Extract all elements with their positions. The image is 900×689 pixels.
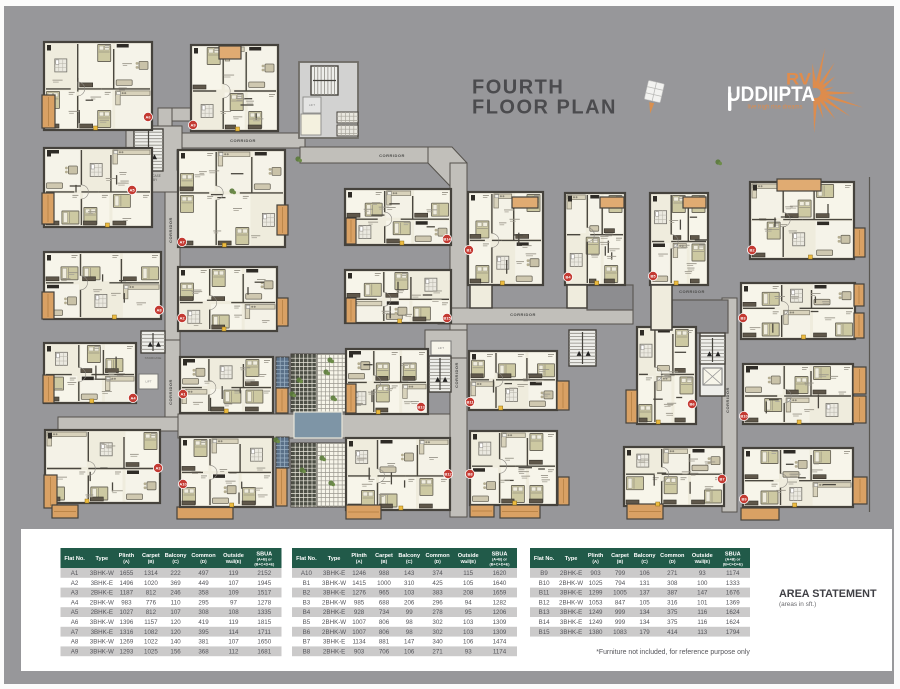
svg-text:140: 140 — [170, 639, 181, 646]
svg-text:B3: B3 — [303, 599, 311, 606]
svg-text:B13: B13 — [539, 609, 551, 616]
svg-text:(C): (C) — [641, 559, 648, 564]
svg-text:806: 806 — [379, 619, 390, 626]
svg-text:246: 246 — [170, 590, 181, 597]
svg-text:101: 101 — [697, 599, 708, 606]
svg-text:A10: A10 — [301, 570, 313, 577]
svg-text:A9: A9 — [190, 123, 196, 128]
svg-text:(areas in sft.): (areas in sft.) — [779, 601, 816, 608]
svg-text:CORRIDOR: CORRIDOR — [168, 217, 173, 243]
svg-text:B4: B4 — [565, 275, 571, 280]
svg-text:3BHK-E: 3BHK-E — [560, 629, 582, 636]
svg-text:3BHK-W: 3BHK-W — [90, 619, 114, 626]
svg-text:903: 903 — [590, 570, 601, 577]
svg-text:CORRIDOR: CORRIDOR — [230, 138, 256, 143]
svg-text:734: 734 — [379, 609, 390, 616]
svg-text:1025: 1025 — [589, 580, 603, 587]
svg-text:1022: 1022 — [144, 639, 158, 646]
svg-text:B15: B15 — [443, 316, 451, 321]
svg-text:903: 903 — [354, 648, 365, 655]
svg-text:3BHK-W: 3BHK-W — [90, 639, 114, 646]
svg-text:999: 999 — [615, 609, 626, 616]
svg-text:Flat No.: Flat No. — [64, 556, 85, 562]
svg-text:999: 999 — [615, 619, 626, 626]
svg-text:1174: 1174 — [726, 570, 740, 577]
svg-text:1335: 1335 — [257, 609, 271, 616]
svg-text:STAIRCASE: STAIRCASE — [145, 356, 162, 360]
svg-text:3BHK-E: 3BHK-E — [323, 590, 345, 597]
svg-text:271: 271 — [667, 570, 678, 577]
svg-text:B14: B14 — [539, 619, 551, 626]
svg-text:381: 381 — [198, 639, 209, 646]
svg-text:*Furniture not included, for r: *Furniture not included, for reference p… — [596, 649, 750, 656]
svg-text:B1: B1 — [466, 248, 472, 253]
svg-text:98: 98 — [406, 629, 413, 636]
svg-text:B5: B5 — [303, 619, 311, 626]
svg-text:112: 112 — [229, 648, 239, 655]
svg-text:1299: 1299 — [589, 590, 603, 597]
svg-text:1650: 1650 — [257, 639, 271, 646]
svg-text:1020: 1020 — [144, 580, 158, 587]
svg-text:B7: B7 — [719, 477, 725, 482]
svg-text:B10: B10 — [740, 414, 748, 419]
svg-text:3BHK-W: 3BHK-W — [322, 580, 346, 587]
svg-text:103: 103 — [463, 629, 474, 636]
svg-text:107: 107 — [228, 639, 239, 646]
svg-text:A5: A5 — [129, 188, 135, 193]
svg-text:375: 375 — [667, 609, 678, 616]
svg-text:1676: 1676 — [726, 590, 740, 597]
svg-text:1624: 1624 — [726, 619, 740, 626]
svg-text:B11: B11 — [539, 590, 550, 597]
svg-text:A4: A4 — [71, 599, 79, 606]
svg-text:156: 156 — [170, 648, 181, 655]
svg-text:1293: 1293 — [120, 648, 134, 655]
svg-text:497: 497 — [198, 570, 209, 577]
svg-text:A3: A3 — [155, 466, 161, 471]
svg-text:(B+C+D+E): (B+C+D+E) — [723, 563, 744, 567]
svg-text:(A+B) or: (A+B) or — [492, 558, 508, 562]
svg-text:2BHK-W: 2BHK-W — [322, 629, 346, 636]
svg-text:1517: 1517 — [257, 590, 271, 597]
svg-text:95: 95 — [465, 609, 472, 616]
svg-text:(B+C+D+E): (B+C+D+E) — [490, 563, 511, 567]
svg-text:(D): (D) — [200, 559, 207, 564]
svg-text:1309: 1309 — [493, 619, 507, 626]
svg-text:Flat No.: Flat No. — [534, 556, 555, 562]
svg-text:1053: 1053 — [589, 599, 603, 606]
svg-text:1794: 1794 — [726, 629, 740, 636]
svg-text:A7: A7 — [71, 629, 79, 636]
svg-text:271: 271 — [432, 648, 443, 655]
svg-text:B5: B5 — [650, 274, 656, 279]
svg-text:137: 137 — [639, 590, 650, 597]
svg-text:1278: 1278 — [257, 599, 271, 606]
svg-text:113: 113 — [697, 629, 707, 636]
svg-text:(A): (A) — [592, 559, 599, 564]
svg-text:B4: B4 — [303, 609, 311, 616]
svg-text:A9: A9 — [71, 648, 79, 655]
svg-text:B8: B8 — [467, 472, 473, 477]
svg-text:131: 131 — [639, 580, 650, 587]
svg-text:1187: 1187 — [120, 590, 134, 597]
svg-text:110: 110 — [171, 599, 181, 606]
svg-text:B6: B6 — [689, 402, 695, 407]
svg-text:308: 308 — [198, 609, 209, 616]
svg-text:134: 134 — [639, 619, 650, 626]
svg-text:295: 295 — [198, 599, 209, 606]
svg-text:106: 106 — [639, 570, 650, 577]
svg-text:1681: 1681 — [257, 648, 271, 655]
svg-text:1815: 1815 — [257, 619, 271, 626]
svg-text:B9: B9 — [741, 497, 747, 502]
svg-text:A8: A8 — [156, 308, 162, 313]
svg-text:965: 965 — [379, 590, 390, 597]
svg-text:1333: 1333 — [726, 580, 740, 587]
svg-text:A3: A3 — [71, 590, 79, 597]
svg-text:806: 806 — [379, 629, 390, 636]
svg-text:B13: B13 — [417, 405, 425, 410]
svg-text:106: 106 — [404, 648, 415, 655]
svg-text:120: 120 — [170, 619, 181, 626]
svg-text:847: 847 — [615, 599, 626, 606]
svg-text:CORRIDOR: CORRIDOR — [679, 289, 705, 294]
svg-text:3BHK-E: 3BHK-E — [560, 590, 582, 597]
svg-text:358: 358 — [198, 590, 209, 597]
svg-text:Wall(E): Wall(E) — [695, 559, 711, 564]
svg-text:CORRIDOR: CORRIDOR — [168, 379, 173, 405]
svg-text:310: 310 — [404, 580, 415, 587]
svg-text:928: 928 — [354, 609, 365, 616]
svg-text:116: 116 — [697, 619, 707, 626]
svg-text:1025: 1025 — [144, 648, 158, 655]
svg-text:100: 100 — [697, 580, 708, 587]
svg-text:CORRIDOR: CORRIDOR — [510, 312, 536, 317]
svg-text:2BHK-E: 2BHK-E — [323, 648, 345, 655]
svg-text:A4: A4 — [130, 396, 136, 401]
svg-text:983: 983 — [121, 599, 132, 606]
svg-text:419: 419 — [198, 619, 209, 626]
svg-text:A10: A10 — [179, 482, 187, 487]
svg-text:812: 812 — [146, 609, 157, 616]
svg-text:1380: 1380 — [589, 629, 603, 636]
svg-text:A6: A6 — [145, 115, 151, 120]
svg-text:99: 99 — [406, 609, 413, 616]
svg-text:B12: B12 — [539, 599, 551, 606]
svg-text:114: 114 — [229, 629, 239, 636]
svg-text:Wall(E): Wall(E) — [460, 559, 476, 564]
svg-text:B6: B6 — [303, 629, 311, 636]
svg-text:1316: 1316 — [120, 629, 134, 636]
svg-text:449: 449 — [198, 580, 209, 587]
svg-text:A1: A1 — [180, 392, 186, 397]
svg-text:1007: 1007 — [352, 629, 366, 636]
svg-text:B10: B10 — [539, 580, 551, 587]
svg-text:LIFT: LIFT — [309, 103, 315, 107]
svg-text:B2: B2 — [303, 590, 311, 597]
svg-text:278: 278 — [432, 609, 443, 616]
svg-text:A1: A1 — [71, 570, 79, 577]
svg-text:1246: 1246 — [352, 570, 366, 577]
svg-text:FOURTH: FOURTH — [472, 77, 564, 99]
svg-text:2BHK-E: 2BHK-E — [323, 609, 345, 616]
svg-text:120: 120 — [170, 629, 181, 636]
svg-text:B7: B7 — [303, 639, 311, 646]
svg-text:296: 296 — [432, 599, 443, 606]
svg-text:98: 98 — [406, 619, 413, 626]
svg-text:2BHK-E: 2BHK-E — [91, 609, 113, 616]
svg-text:425: 425 — [432, 580, 443, 587]
svg-text:302: 302 — [432, 629, 443, 636]
svg-text:107: 107 — [170, 609, 181, 616]
svg-text:2BHK-W: 2BHK-W — [559, 599, 583, 606]
svg-text:1005: 1005 — [613, 590, 627, 597]
svg-text:985: 985 — [354, 599, 365, 606]
svg-text:A6: A6 — [71, 619, 79, 626]
svg-text:3BHK-E: 3BHK-E — [323, 639, 345, 646]
svg-text:1945: 1945 — [257, 580, 271, 587]
svg-text:(B): (B) — [148, 559, 155, 564]
svg-text:1309: 1309 — [493, 629, 507, 636]
svg-text:93: 93 — [699, 570, 706, 577]
svg-text:1082: 1082 — [144, 629, 158, 636]
svg-text:134: 134 — [639, 609, 650, 616]
svg-text:3BHK-E: 3BHK-E — [91, 629, 113, 636]
svg-text:340: 340 — [432, 639, 443, 646]
svg-text:3BHK-E: 3BHK-E — [560, 619, 582, 626]
svg-text:97: 97 — [230, 599, 237, 606]
svg-text:1249: 1249 — [589, 609, 603, 616]
svg-text:Type: Type — [95, 556, 108, 562]
svg-text:1620: 1620 — [493, 570, 507, 577]
svg-text:2BHK-W: 2BHK-W — [559, 580, 583, 587]
svg-text:1083: 1083 — [613, 629, 627, 636]
svg-text:988: 988 — [379, 570, 390, 577]
svg-text:(A): (A) — [123, 559, 130, 564]
svg-text:1157: 1157 — [144, 619, 158, 626]
svg-text:Type: Type — [328, 556, 341, 562]
svg-text:1282: 1282 — [493, 599, 507, 606]
svg-text:Wall(E): Wall(E) — [226, 559, 242, 564]
svg-text:1314: 1314 — [144, 570, 158, 577]
svg-text:1415: 1415 — [352, 580, 366, 587]
svg-text:Flat No.: Flat No. — [296, 556, 317, 562]
svg-text:106: 106 — [463, 639, 474, 646]
svg-text:103: 103 — [404, 590, 415, 597]
svg-text:(D): (D) — [434, 559, 441, 564]
svg-text:368: 368 — [198, 648, 209, 655]
svg-text:A5: A5 — [71, 609, 79, 616]
svg-text:2BHK-W: 2BHK-W — [322, 619, 346, 626]
svg-text:B9: B9 — [540, 570, 548, 577]
svg-text:1659: 1659 — [493, 590, 507, 597]
svg-text:799: 799 — [615, 570, 626, 577]
svg-text:316: 316 — [667, 599, 678, 606]
svg-text:387: 387 — [667, 590, 678, 597]
svg-text:119: 119 — [229, 619, 239, 626]
svg-text:3BHK-E: 3BHK-E — [560, 609, 582, 616]
svg-text:369: 369 — [170, 580, 181, 587]
svg-text:2BHK-E: 2BHK-E — [560, 570, 582, 577]
svg-text:794: 794 — [615, 580, 626, 587]
svg-text:CORRIDOR: CORRIDOR — [379, 153, 405, 158]
svg-text:(A): (A) — [356, 559, 363, 564]
svg-text:1174: 1174 — [493, 648, 507, 655]
svg-text:(C): (C) — [406, 559, 413, 564]
svg-text:B12: B12 — [444, 472, 452, 477]
svg-text:374: 374 — [432, 570, 443, 577]
svg-text:208: 208 — [463, 590, 474, 597]
svg-text:B1: B1 — [303, 580, 311, 587]
svg-text:CORRIDOR: CORRIDOR — [454, 362, 459, 388]
svg-text:706: 706 — [379, 648, 390, 655]
svg-text:(C): (C) — [172, 559, 179, 564]
svg-text:Type: Type — [565, 556, 578, 562]
svg-text:109: 109 — [228, 590, 239, 597]
svg-text:FLOOR PLAN: FLOOR PLAN — [472, 97, 617, 119]
svg-text:A2: A2 — [71, 580, 79, 587]
svg-text:B2: B2 — [749, 248, 755, 253]
svg-text:103: 103 — [463, 619, 474, 626]
svg-text:147: 147 — [404, 639, 415, 646]
svg-text:1027: 1027 — [120, 609, 134, 616]
svg-text:94: 94 — [465, 599, 472, 606]
svg-text:LIFT: LIFT — [145, 380, 151, 384]
svg-text:B3: B3 — [740, 316, 746, 321]
svg-text:1269: 1269 — [120, 639, 134, 646]
svg-text:105: 105 — [463, 580, 474, 587]
svg-text:115: 115 — [463, 570, 473, 577]
svg-text:206: 206 — [404, 599, 415, 606]
svg-text:108: 108 — [228, 609, 239, 616]
svg-text:93: 93 — [465, 648, 472, 655]
svg-text:A7: A7 — [179, 240, 185, 245]
svg-text:1624: 1624 — [726, 609, 740, 616]
svg-text:3BHK-W: 3BHK-W — [90, 570, 114, 577]
svg-text:(B+C+D+E): (B+C+D+E) — [254, 563, 275, 567]
svg-text:1134: 1134 — [352, 639, 366, 646]
svg-text:2BHK-W: 2BHK-W — [90, 599, 114, 606]
svg-text:1249: 1249 — [589, 619, 603, 626]
svg-text:1655: 1655 — [120, 570, 134, 577]
svg-text:383: 383 — [432, 590, 443, 597]
svg-text:3BHK-W: 3BHK-W — [90, 648, 114, 655]
svg-text:1000: 1000 — [377, 580, 391, 587]
svg-text:1640: 1640 — [493, 580, 507, 587]
svg-text:105: 105 — [639, 599, 650, 606]
svg-text:375: 375 — [667, 619, 678, 626]
svg-text:116: 116 — [697, 609, 707, 616]
svg-text:1396: 1396 — [120, 619, 134, 626]
svg-text:(A+B) or: (A+B) or — [257, 558, 273, 562]
svg-text:B8: B8 — [303, 648, 311, 655]
svg-text:(A+B) or: (A+B) or — [725, 558, 741, 562]
svg-text:LIFT: LIFT — [438, 346, 444, 350]
svg-text:2BHK-E: 2BHK-E — [91, 590, 113, 597]
svg-text:414: 414 — [667, 629, 678, 636]
svg-text:(B): (B) — [381, 559, 388, 564]
svg-text:1496: 1496 — [120, 580, 134, 587]
svg-text:CORRIDOR: CORRIDOR — [725, 387, 730, 413]
svg-text:1276: 1276 — [352, 590, 366, 597]
svg-text:179: 179 — [639, 629, 650, 636]
svg-text:(B): (B) — [617, 559, 624, 564]
svg-text:B14: B14 — [443, 237, 451, 242]
svg-text:B15: B15 — [539, 629, 551, 636]
svg-text:2BHK-W: 2BHK-W — [322, 599, 346, 606]
svg-text:395: 395 — [198, 629, 209, 636]
svg-text:A2: A2 — [179, 316, 185, 321]
svg-text:881: 881 — [379, 639, 390, 646]
svg-text:812: 812 — [146, 590, 157, 597]
svg-text:1007: 1007 — [352, 619, 366, 626]
svg-text:1711: 1711 — [258, 629, 272, 636]
svg-text:AREA STATEMENT: AREA STATEMENT — [779, 588, 877, 600]
svg-text:1206: 1206 — [493, 609, 507, 616]
svg-text:2152: 2152 — [257, 570, 271, 577]
svg-text:308: 308 — [667, 580, 678, 587]
svg-text:B11: B11 — [466, 400, 474, 405]
svg-text:107: 107 — [228, 580, 239, 587]
svg-text:3BHK-E: 3BHK-E — [91, 580, 113, 587]
svg-text:147: 147 — [697, 590, 708, 597]
svg-text:688: 688 — [379, 599, 390, 606]
svg-text:302: 302 — [432, 619, 443, 626]
svg-text:119: 119 — [229, 570, 239, 577]
svg-text:776: 776 — [146, 599, 157, 606]
svg-text:(D): (D) — [669, 559, 676, 564]
svg-text:1369: 1369 — [726, 599, 740, 606]
svg-text:3BHK-E: 3BHK-E — [323, 570, 345, 577]
svg-text:A8: A8 — [71, 639, 79, 646]
svg-text:live high rise dreams: live high rise dreams — [747, 105, 802, 111]
svg-text:143: 143 — [404, 570, 415, 577]
svg-text:222: 222 — [170, 570, 181, 577]
svg-text:UDDIIPTA: UDDIIPTA — [727, 83, 815, 106]
svg-text:1474: 1474 — [493, 639, 507, 646]
